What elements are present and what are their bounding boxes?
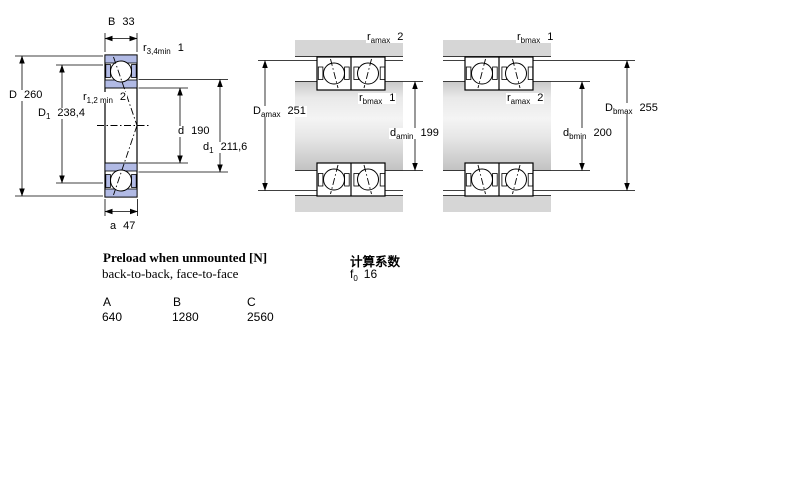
dim-label-B: B33 bbox=[107, 17, 136, 28]
dim-label-r34min: r3,4min1 bbox=[142, 43, 185, 54]
dim-label-rbmax-top: rbmax1 bbox=[516, 32, 554, 43]
dim-label-Dbmax: Dbmax255 bbox=[604, 103, 659, 114]
dim-label-ramax-top: ramax2 bbox=[366, 32, 404, 43]
preload-title: Preload when unmounted [N] bbox=[103, 251, 267, 265]
dim-label-Damax: Damax251 bbox=[252, 106, 307, 117]
dim-label-ramax-mid: ramax2 bbox=[506, 93, 544, 104]
dim-label-rbmax-mid: rbmax1 bbox=[358, 93, 396, 104]
preload-col-c: C bbox=[247, 296, 256, 309]
dim-label-D: D260 bbox=[8, 90, 43, 101]
preload-value-a: 640 bbox=[102, 311, 122, 324]
middle-mounting-diagram bbox=[258, 40, 423, 212]
preload-value-b: 1280 bbox=[172, 311, 199, 324]
dim-label-d1: d1211,6 bbox=[202, 142, 248, 153]
dim-label-r12min: r1,2 min2 bbox=[82, 92, 127, 103]
preload-value-c: 2560 bbox=[247, 311, 274, 324]
right-mounting-diagram bbox=[443, 40, 635, 212]
preload-subtitle: back-to-back, face-to-face bbox=[102, 267, 238, 281]
dim-label-D1: D1238,4 bbox=[37, 108, 86, 119]
bearing-drawing-page: B33 r3,4min1 D260 D1238,4 r1,2 min2 d190… bbox=[0, 0, 800, 500]
f0-factor: f016 bbox=[350, 268, 377, 285]
dim-label-damin: damin199 bbox=[389, 128, 440, 139]
dim-label-a: a47 bbox=[109, 221, 136, 232]
dim-label-dbmin: dbmin200 bbox=[562, 128, 613, 139]
dim-label-d: d190 bbox=[177, 126, 210, 137]
preload-col-b: B bbox=[173, 296, 181, 309]
preload-col-a: A bbox=[103, 296, 111, 309]
